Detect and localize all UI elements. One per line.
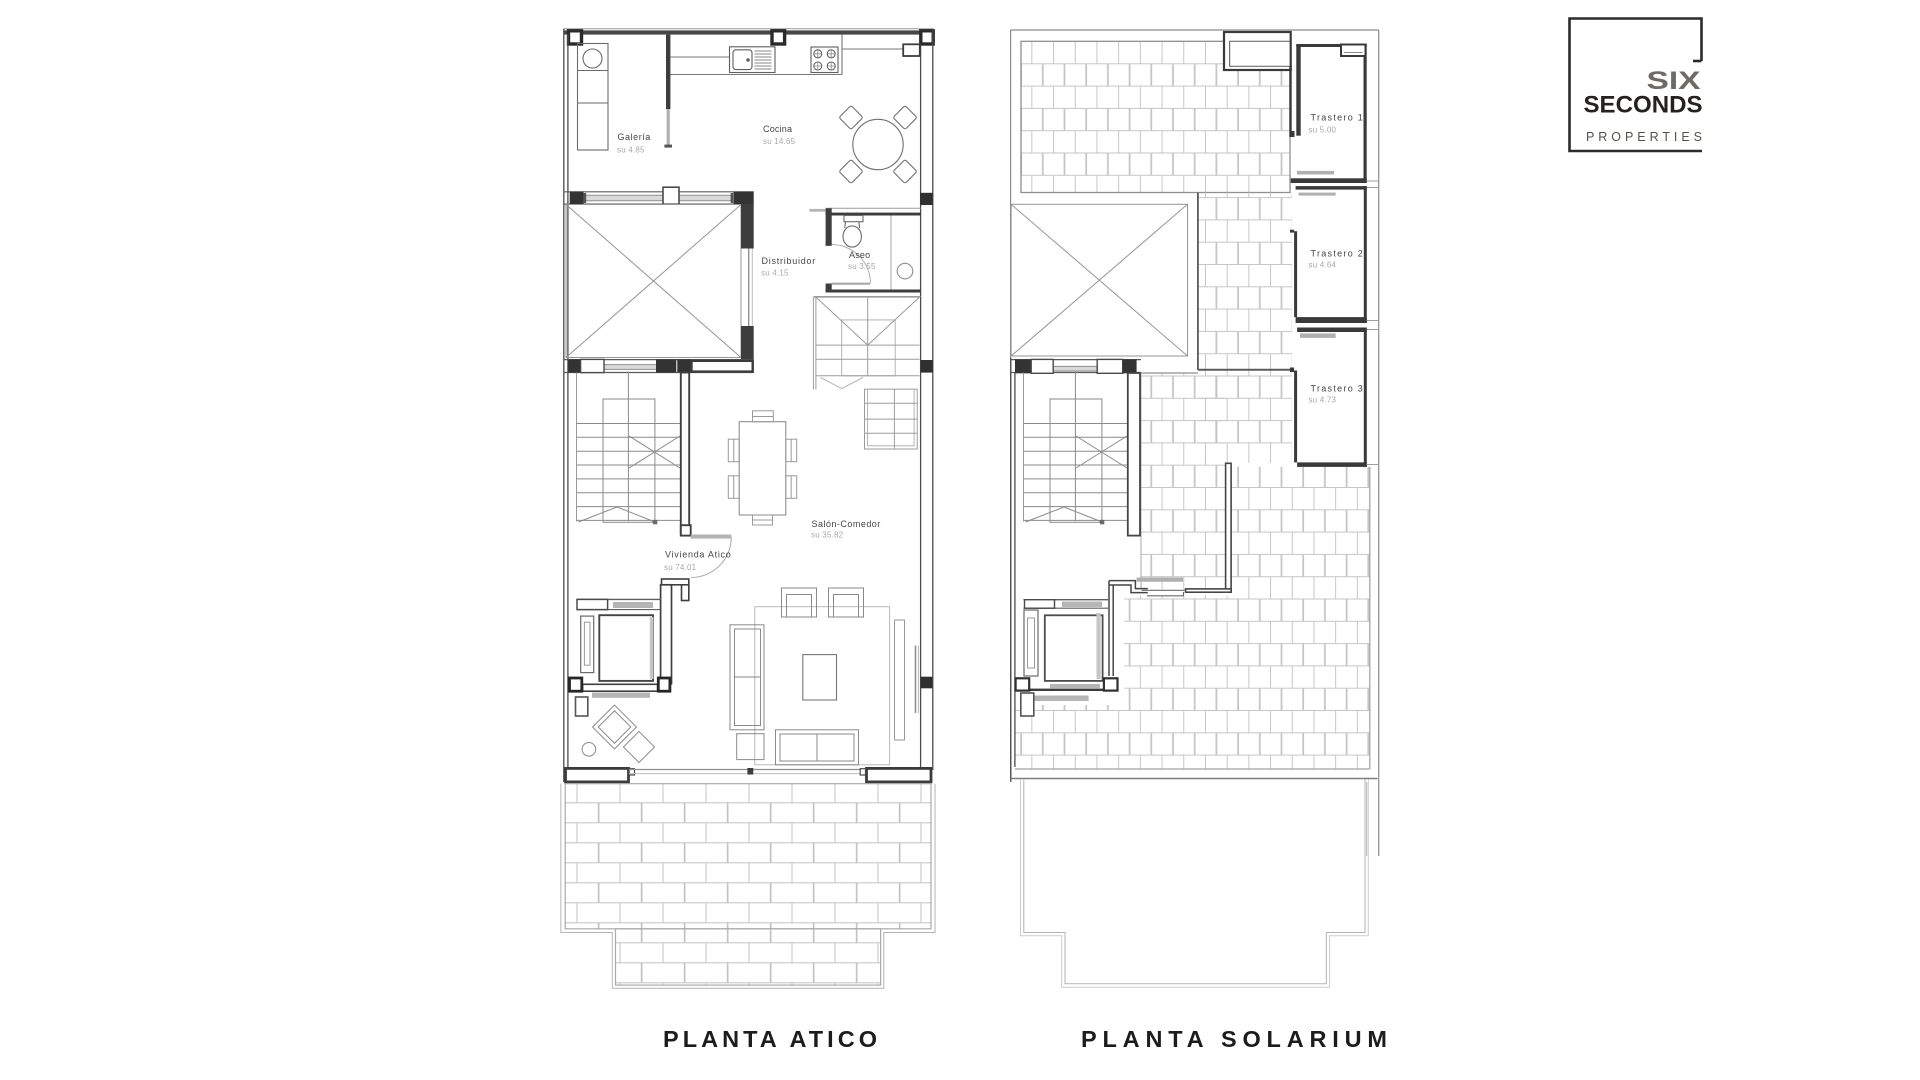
svg-text:Cocina: Cocina [763,124,792,134]
svg-text:Galería: Galería [618,132,651,142]
svg-text:Salón-Comedor: Salón-Comedor [812,519,881,529]
svg-text:PLANTA ATICO: PLANTA ATICO [663,1026,877,1052]
svg-text:su 4.64: su 4.64 [1309,261,1337,270]
svg-text:su 35.82: su 35.82 [811,531,844,540]
svg-text:su 74.01: su 74.01 [664,563,697,572]
svg-text:Aseo: Aseo [849,250,870,260]
svg-text:PROPERTIES: PROPERTIES [1586,130,1702,144]
svg-text:su 5.00: su 5.00 [1309,126,1337,135]
svg-text:Trastero 2: Trastero 2 [1311,249,1364,259]
svg-text:su 4.85: su 4.85 [617,146,645,155]
svg-text:Vivienda Atico: Vivienda Atico [665,550,731,560]
svg-text:su 4.15: su 4.15 [761,269,789,278]
svg-text:Distribuidor: Distribuidor [762,256,816,266]
svg-text:Trastero 1: Trastero 1 [1311,113,1364,123]
svg-text:su 4.73: su 4.73 [1309,396,1337,405]
svg-text:SECONDS: SECONDS [1584,92,1703,119]
svg-text:su 14.65: su 14.65 [763,137,796,146]
svg-text:Trastero 3: Trastero 3 [1311,384,1364,394]
svg-text:su 3.55: su 3.55 [848,262,876,271]
